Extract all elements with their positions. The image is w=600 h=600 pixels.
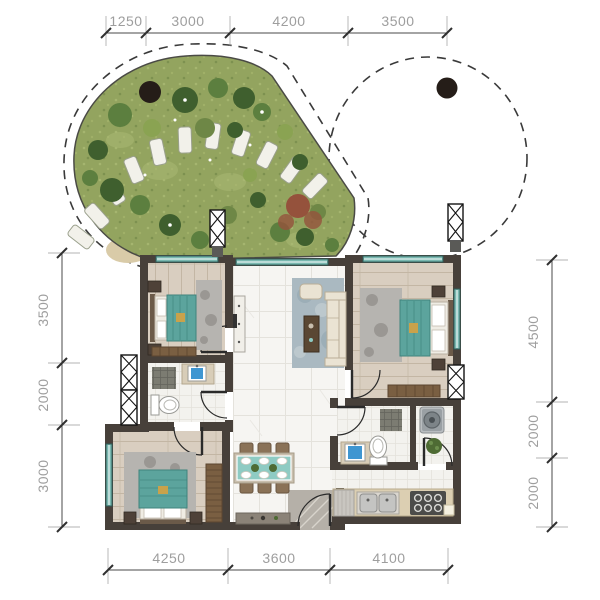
dresser	[152, 347, 196, 356]
bedroom-2-window-right	[454, 289, 460, 349]
fridge	[334, 490, 354, 516]
shower-mat	[380, 409, 402, 431]
bedroom-2-window-top	[363, 256, 443, 262]
bedroom-3-window-left	[106, 444, 112, 506]
nightstand	[124, 512, 136, 524]
dim-label: 3600	[262, 550, 295, 566]
cooktop	[410, 491, 446, 515]
floor-plan-canvas: 1250 3000 4200 3500 4250 3600 4100 3500 …	[0, 0, 600, 600]
coffee-table	[304, 316, 319, 352]
nightstand	[190, 512, 202, 524]
column-icon	[210, 210, 225, 257]
nightstand	[148, 281, 161, 292]
cutting-board	[444, 505, 454, 515]
dresser	[388, 385, 440, 397]
tv-cabinet	[233, 296, 245, 352]
nightstand	[432, 359, 445, 370]
kitchen-fixtures	[333, 489, 454, 516]
dim-label: 3000	[35, 459, 51, 492]
dim-label: 4500	[525, 315, 541, 348]
potted-plant	[426, 438, 442, 454]
dim-label: 4250	[152, 550, 185, 566]
bed-double	[139, 470, 187, 524]
dim-label: 2000	[525, 414, 541, 447]
sideboard	[236, 513, 290, 524]
dim-label: 3000	[171, 13, 204, 29]
toilet	[370, 436, 388, 465]
site-tree-dot	[437, 78, 458, 99]
dim-label: 4100	[372, 550, 405, 566]
dining-table	[234, 453, 294, 483]
column-icon	[448, 365, 464, 399]
site-dashed-circle	[329, 57, 527, 259]
dimension-right: 4500 2000 2000	[525, 255, 568, 532]
table-plant	[251, 464, 259, 472]
kitchen-sink	[357, 492, 399, 514]
vanity-sink	[182, 364, 214, 384]
washing-machine	[420, 407, 444, 433]
nightstand	[432, 286, 445, 297]
bed-double	[150, 294, 196, 342]
dim-label: 4200	[272, 13, 305, 29]
bed-double	[400, 300, 453, 356]
wardrobe	[206, 464, 222, 522]
column-icon	[121, 390, 137, 425]
dim-label: 3500	[381, 13, 414, 29]
dim-label: 2000	[525, 476, 541, 509]
column-icon	[121, 355, 137, 390]
shower-mat	[152, 367, 176, 389]
toilet	[151, 395, 179, 415]
vanity-sink	[341, 442, 371, 464]
living-balcony-window	[236, 259, 328, 265]
dim-label: 2000	[35, 378, 51, 411]
table-plant	[269, 464, 277, 472]
dim-label: 1250	[109, 13, 142, 29]
column-icon	[448, 204, 463, 252]
tv-screen	[233, 314, 237, 328]
floor-plan-page: 1250 3000 4200 3500 4250 3600 4100 3500 …	[0, 0, 600, 600]
dimension-left: 3500 2000 3000	[35, 248, 80, 532]
garden-tree-dot	[139, 81, 161, 103]
dimension-top: 1250 3000 4200 3500	[101, 13, 452, 46]
dimension-bottom: 4250 3600 4100	[103, 548, 453, 584]
sofa	[325, 292, 346, 366]
dim-label: 3500	[35, 293, 51, 326]
armchair	[300, 284, 322, 299]
bedroom-1-window	[156, 256, 218, 262]
